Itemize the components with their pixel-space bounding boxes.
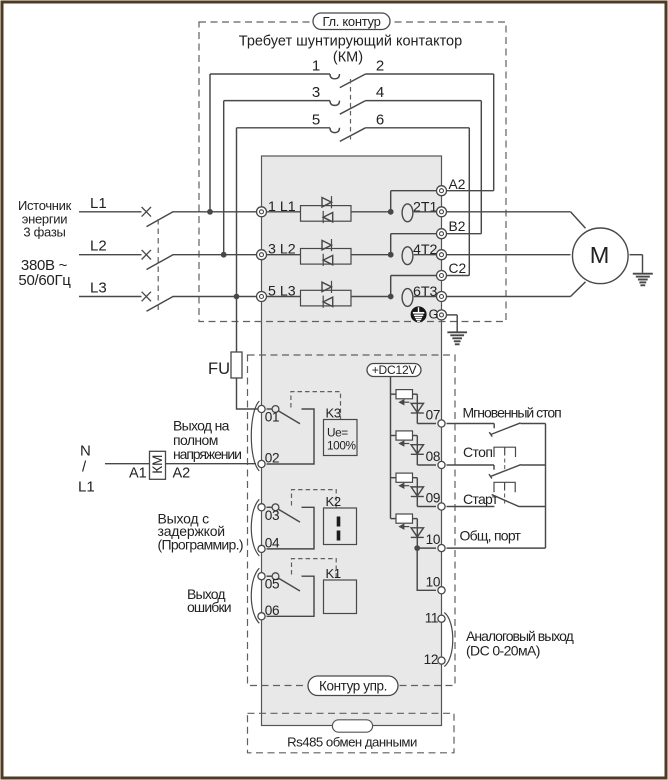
svg-text:6: 6 [376,111,384,128]
svg-text:ошибки: ошибки [187,599,231,615]
svg-text:07: 07 [426,408,440,423]
svg-text:FU: FU [208,360,230,378]
svg-text:C2: C2 [449,261,467,276]
svg-text:K1: K1 [326,566,341,581]
svg-text:напряжении: напряжении [173,446,241,462]
svg-text:L1: L1 [90,195,107,212]
svg-text:A2: A2 [449,177,466,192]
svg-text:N: N [80,443,91,460]
svg-text:КМ: КМ [150,455,165,474]
svg-text:5: 5 [312,111,320,128]
svg-text:01: 01 [265,410,279,425]
svg-text:3: 3 [312,84,320,101]
svg-text:A2: A2 [173,466,191,482]
svg-text:+DC12V: +DC12V [372,363,417,377]
svg-text:2: 2 [376,58,384,75]
svg-text:G: G [429,306,439,321]
svg-text:04: 04 [265,535,280,550]
svg-text:K2: K2 [326,494,341,509]
svg-text:Ue=: Ue= [327,425,348,439]
svg-text:06: 06 [265,603,279,618]
svg-text:Стоп: Стоп [463,444,492,460]
svg-text:B2: B2 [449,219,466,234]
svg-text:2T1: 2T1 [413,199,438,215]
svg-text:05: 05 [265,577,279,592]
svg-text:A1: A1 [129,466,147,482]
svg-text:L3: L3 [90,280,107,297]
svg-text:50/60Гц: 50/60Гц [18,272,71,289]
svg-text:Контур упр.: Контур упр. [319,678,387,693]
svg-text:4T2: 4T2 [413,242,438,258]
svg-text:M: M [590,242,610,268]
svg-text:K3: K3 [326,406,341,421]
svg-text:L1: L1 [78,479,95,496]
svg-text:09: 09 [426,491,440,506]
svg-text:02: 02 [265,451,279,466]
svg-text:11: 11 [425,611,438,626]
svg-text:(Программир.): (Программир.) [158,537,243,553]
svg-text:Rs485 обмен данными: Rs485 обмен данными [287,735,417,750]
svg-text:10: 10 [426,574,441,589]
svg-text:Мгновенный стоп: Мгновенный стоп [463,405,562,421]
svg-text:100%: 100% [327,439,356,453]
svg-text:Старт: Старт [463,491,499,507]
svg-text:(DC 0-20мА): (DC 0-20мА) [466,643,540,659]
svg-text:3 фазы: 3 фазы [23,225,65,240]
svg-text:6T3: 6T3 [413,284,438,300]
svg-text:L2: L2 [90,238,107,255]
svg-text:03: 03 [265,508,279,523]
svg-text:08: 08 [426,449,440,464]
svg-text:4: 4 [376,84,384,101]
svg-text:1: 1 [312,58,320,75]
svg-text:Требует шунтирующий контактор: Требует шунтирующий контактор [239,34,462,50]
svg-text:Гл. контур: Гл. контур [322,14,380,29]
svg-text:Общ, порт: Общ, порт [460,528,522,544]
svg-text:12: 12 [424,652,438,667]
svg-text:10: 10 [426,532,441,547]
svg-text:(КМ): (КМ) [333,50,363,66]
